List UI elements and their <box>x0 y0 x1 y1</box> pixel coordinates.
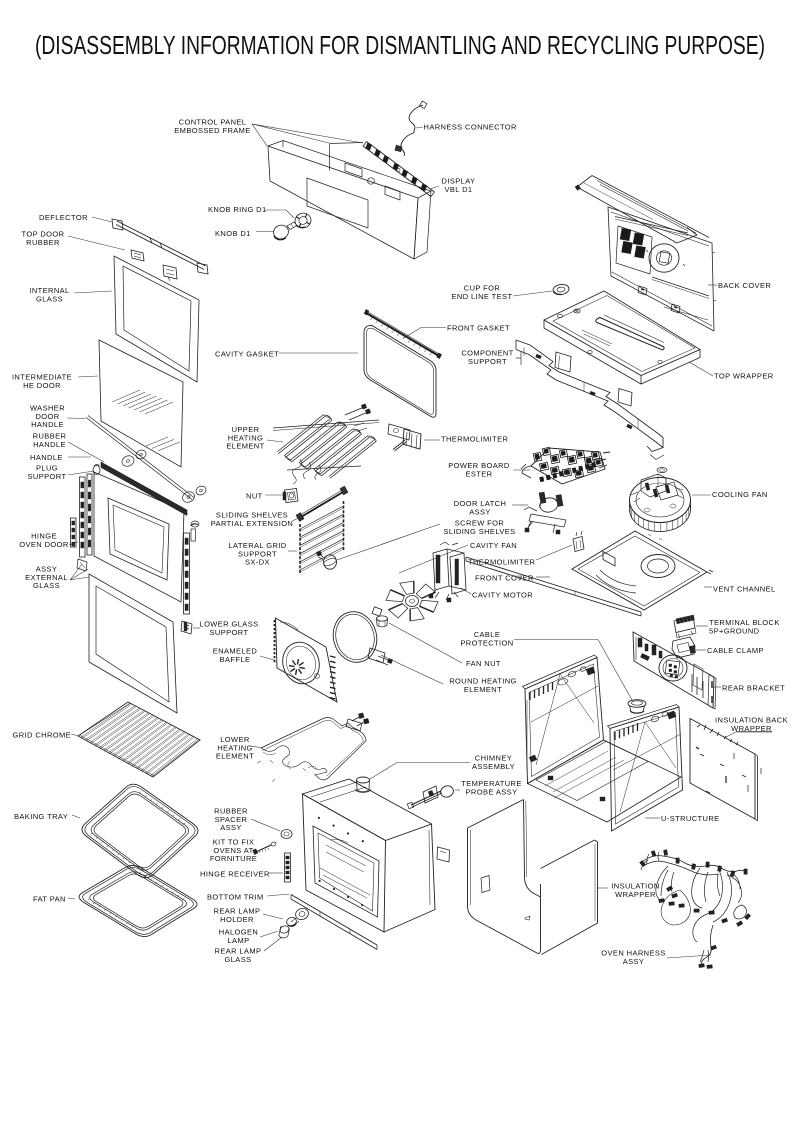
svg-text:TEMPERATUREPROBE ASSY: TEMPERATUREPROBE ASSY <box>461 779 522 796</box>
svg-text:KNOB D1: KNOB D1 <box>215 229 251 238</box>
svg-text:(DISASSEMBLY INFORMATION FOR: (DISASSEMBLY INFORMATION FOR DISMANTLING… <box>35 30 765 60</box>
svg-text:HINGE RECEIVER: HINGE RECEIVER <box>200 870 270 879</box>
svg-text:CAVITY FAN: CAVITY FAN <box>470 541 517 550</box>
svg-text:FAN NUT: FAN NUT <box>466 659 501 668</box>
svg-text:COMPONENTSUPPORT: COMPONENTSUPPORT <box>461 349 513 366</box>
svg-text:RUBBERHANDLE: RUBBERHANDLE <box>33 432 67 449</box>
svg-text:TOP DOORRUBBER: TOP DOORRUBBER <box>22 230 65 247</box>
svg-text:COOLING FAN: COOLING FAN <box>712 490 768 499</box>
svg-text:TOP WRAPPER: TOP WRAPPER <box>714 372 774 381</box>
svg-text:FRONT COVER: FRONT COVER <box>475 574 534 583</box>
svg-text:VENT CHANNEL: VENT CHANNEL <box>713 585 776 594</box>
svg-text:UPPERHEATINGELEMENT: UPPERHEATINGELEMENT <box>226 425 264 451</box>
svg-text:CHIMNEYASSEMBLY: CHIMNEYASSEMBLY <box>472 754 515 771</box>
svg-text:GRID CHROME: GRID CHROME <box>13 731 72 740</box>
svg-text:FAT PAN: FAT PAN <box>33 895 66 904</box>
svg-text:DISPLAYVBL D1: DISPLAYVBL D1 <box>442 177 476 194</box>
svg-text:CONTROL PANELEMBOSSED FRAME: CONTROL PANELEMBOSSED FRAME <box>174 118 250 135</box>
svg-text:FRONT GASKET: FRONT GASKET <box>447 324 510 333</box>
svg-text:CABLE CLAMP: CABLE CLAMP <box>707 646 764 655</box>
svg-text:BOTTOM TRIM: BOTTOM TRIM <box>207 893 264 902</box>
svg-text:KNOB RING D1: KNOB RING D1 <box>208 205 267 214</box>
svg-text:REAR BRACKET: REAR BRACKET <box>722 684 785 693</box>
svg-text:DEFLECTOR: DEFLECTOR <box>39 213 88 222</box>
svg-text:KIT TO FIXOVENS ATFORNITURE: KIT TO FIXOVENS ATFORNITURE <box>210 838 257 864</box>
svg-text:THERMOLIMITER: THERMOLIMITER <box>441 435 508 444</box>
svg-text:U-STRUCTURE: U-STRUCTURE <box>661 814 720 823</box>
svg-text:BAKING TRAY: BAKING TRAY <box>14 812 68 821</box>
svg-text:LOWERHEATINGELEMENT: LOWERHEATINGELEMENT <box>216 735 254 761</box>
svg-text:BACK COVER: BACK COVER <box>718 281 771 290</box>
svg-text:INSULATIONWRAPPER: INSULATIONWRAPPER <box>611 882 659 899</box>
svg-text:SLIDING SHELVESPARTIAL EXTENSI: SLIDING SHELVESPARTIAL EXTENSION <box>211 511 294 528</box>
svg-text:CAVITY GASKET: CAVITY GASKET <box>215 350 279 359</box>
svg-text:HARNESS CONNECTOR: HARNESS CONNECTOR <box>424 123 518 132</box>
svg-text:CAVITY MOTOR: CAVITY MOTOR <box>472 591 533 600</box>
svg-text:HANDLE: HANDLE <box>30 453 63 462</box>
svg-text:REAR LAMPHOLDER: REAR LAMPHOLDER <box>214 907 261 924</box>
svg-text:NUT: NUT <box>246 492 263 501</box>
